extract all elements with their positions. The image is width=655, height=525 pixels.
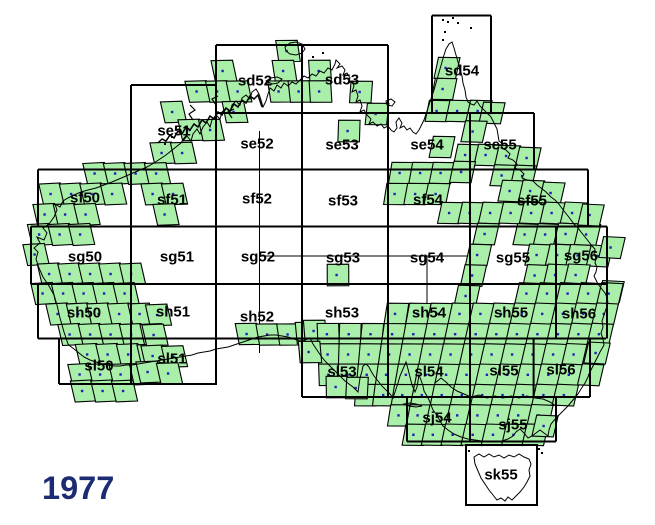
svg-text:sf55: sf55 bbox=[517, 193, 547, 210]
svg-text:sl56: sl56 bbox=[546, 362, 575, 379]
svg-text:sl53: sl53 bbox=[327, 364, 356, 381]
svg-text:se51: se51 bbox=[157, 123, 190, 140]
svg-text:sk55: sk55 bbox=[484, 467, 517, 484]
svg-text:sl54: sl54 bbox=[414, 364, 444, 381]
svg-text:sl51: sl51 bbox=[157, 351, 186, 368]
svg-text:sd53: sd53 bbox=[325, 72, 359, 89]
svg-text:sl55: sl55 bbox=[489, 363, 518, 380]
svg-text:sh56: sh56 bbox=[562, 306, 596, 323]
svg-text:se53: se53 bbox=[325, 137, 358, 154]
svg-text:sf50: sf50 bbox=[70, 190, 100, 207]
svg-text:sd54: sd54 bbox=[445, 63, 480, 80]
svg-text:sh55: sh55 bbox=[494, 305, 528, 322]
svg-text:sj54: sj54 bbox=[422, 410, 452, 427]
svg-text:sg54: sg54 bbox=[410, 250, 445, 267]
svg-text:sd52: sd52 bbox=[238, 73, 272, 90]
svg-text:se55: se55 bbox=[483, 137, 516, 154]
svg-text:sg53: sg53 bbox=[326, 250, 360, 267]
svg-text:se52: se52 bbox=[240, 136, 273, 153]
svg-text:sh54: sh54 bbox=[412, 305, 447, 322]
svg-text:sh52: sh52 bbox=[240, 309, 274, 326]
svg-text:sh50: sh50 bbox=[67, 305, 101, 322]
svg-text:sj55: sj55 bbox=[498, 417, 527, 434]
svg-text:sg52: sg52 bbox=[241, 249, 275, 266]
svg-text:sl50: sl50 bbox=[84, 358, 113, 375]
svg-text:sh53: sh53 bbox=[325, 305, 359, 322]
svg-text:sg56: sg56 bbox=[564, 248, 598, 265]
svg-text:sg51: sg51 bbox=[160, 249, 194, 266]
svg-text:sf52: sf52 bbox=[242, 191, 272, 208]
svg-text:sh51: sh51 bbox=[156, 304, 190, 321]
svg-text:sg55: sg55 bbox=[496, 250, 530, 267]
svg-text:sf53: sf53 bbox=[328, 193, 358, 210]
svg-text:sg50: sg50 bbox=[68, 249, 102, 266]
svg-text:sf51: sf51 bbox=[157, 192, 187, 209]
svg-text:sf54: sf54 bbox=[413, 192, 444, 209]
svg-text:1977: 1977 bbox=[42, 470, 114, 506]
svg-text:se54: se54 bbox=[410, 137, 444, 154]
